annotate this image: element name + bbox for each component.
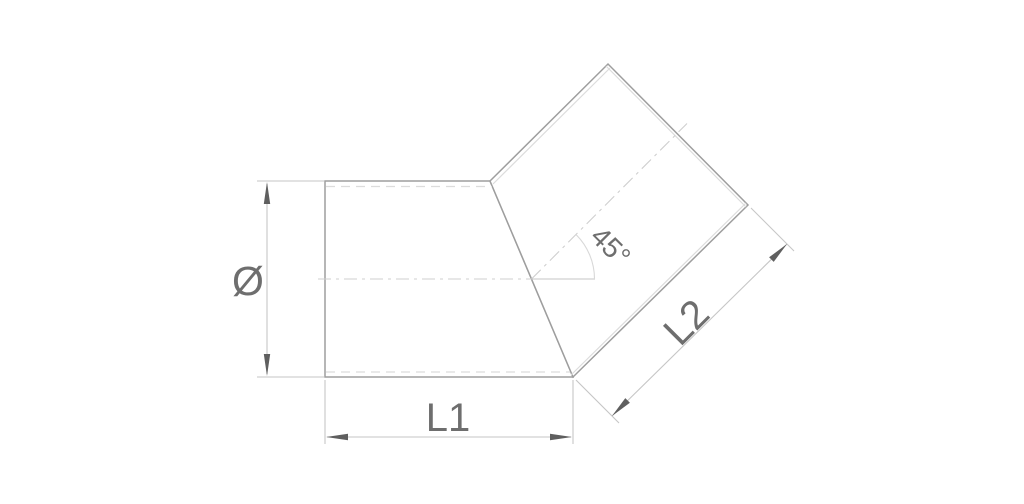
l1-label: L1 bbox=[426, 396, 471, 440]
drawing-canvas: 45° Ø L1 L2 bbox=[0, 0, 1024, 504]
diameter-label: Ø bbox=[232, 258, 264, 304]
diameter-arrow-down-icon bbox=[264, 354, 270, 376]
l1-dimension: L1 bbox=[325, 380, 573, 444]
elbow-45-technical-drawing: 45° Ø L1 L2 bbox=[0, 0, 1024, 504]
l2-extension-line-near bbox=[576, 380, 619, 423]
l2-arrow-near-icon bbox=[612, 398, 630, 416]
diameter-arrow-up-icon bbox=[264, 182, 270, 204]
l2-label: L2 bbox=[655, 291, 718, 354]
l1-arrow-left-icon bbox=[326, 434, 348, 440]
l2-arrow-far-icon bbox=[769, 244, 787, 262]
diameter-dimension: Ø bbox=[232, 181, 324, 377]
l1-arrow-right-icon bbox=[550, 434, 572, 440]
l2-extension-line-far bbox=[751, 208, 794, 251]
